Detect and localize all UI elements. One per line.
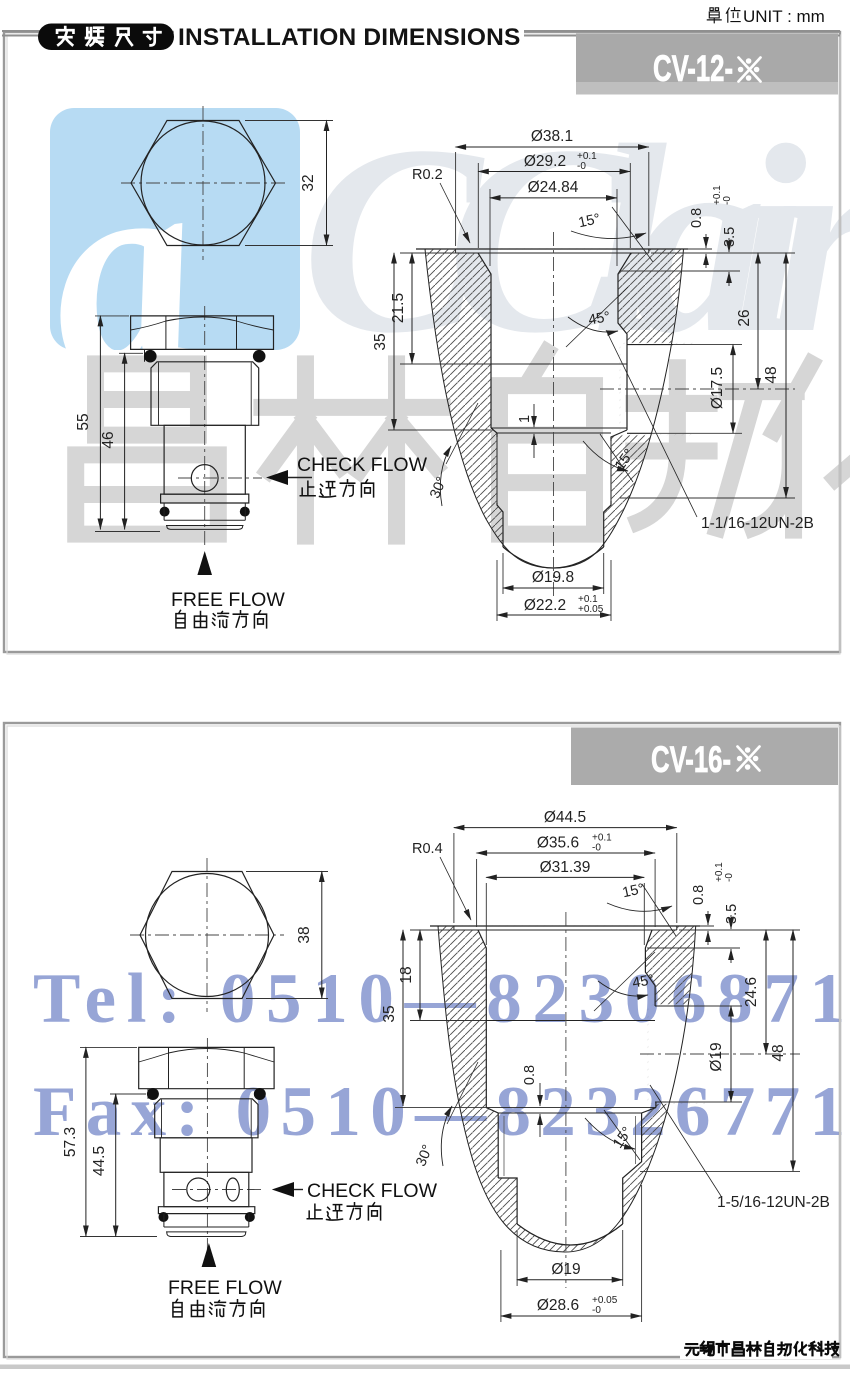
svg-text:32: 32	[300, 174, 317, 191]
svg-text:44.5: 44.5	[91, 1146, 108, 1176]
svg-text:0.8: 0.8	[691, 885, 707, 905]
svg-text:57.3: 57.3	[62, 1127, 79, 1157]
svg-text:Ø22.2: Ø22.2	[524, 597, 566, 614]
svg-text:-0: -0	[722, 196, 733, 205]
svg-text:FREE FLOW: FREE FLOW	[168, 1277, 282, 1299]
svg-text:CHECK FLOW: CHECK FLOW	[297, 454, 428, 476]
svg-text:Ø35.6: Ø35.6	[537, 835, 579, 852]
svg-text:Ø19: Ø19	[551, 1261, 580, 1278]
svg-text:0.8: 0.8	[689, 208, 705, 228]
svg-text:CHECK FLOW: CHECK FLOW	[307, 1180, 438, 1202]
svg-text:Ø29.2: Ø29.2	[524, 153, 566, 170]
svg-text:21.5: 21.5	[390, 293, 407, 323]
svg-text:FREE FLOW: FREE FLOW	[171, 589, 285, 611]
svg-text:R0.4: R0.4	[412, 841, 443, 857]
svg-text:48: 48	[770, 1044, 787, 1061]
svg-text:Ø44.5: Ø44.5	[544, 809, 586, 826]
svg-text:3.5: 3.5	[722, 227, 738, 247]
svg-text:Ø19.8: Ø19.8	[532, 569, 574, 586]
svg-text:1-1/16-12UN-2B: 1-1/16-12UN-2B	[701, 515, 814, 532]
svg-text:1-5/16-12UN-2B: 1-5/16-12UN-2B	[717, 1194, 830, 1211]
svg-text:0.8: 0.8	[522, 1065, 538, 1085]
svg-text:-0: -0	[577, 161, 586, 172]
svg-text:46: 46	[100, 431, 117, 448]
svg-text:INSTALLATION DIMENSIONS: INSTALLATION DIMENSIONS	[178, 24, 521, 51]
svg-text:3.5: 3.5	[724, 904, 740, 924]
svg-text:CV-12-: CV-12-	[653, 48, 733, 89]
svg-text:35: 35	[381, 1005, 398, 1022]
svg-text:-0: -0	[724, 873, 735, 882]
svg-text:-0: -0	[592, 1305, 601, 1316]
svg-text:-0: -0	[592, 843, 601, 854]
svg-text:+0.05: +0.05	[578, 604, 604, 615]
svg-text:Ø28.6: Ø28.6	[537, 1297, 579, 1314]
svg-text:26: 26	[736, 309, 753, 326]
svg-text:35: 35	[372, 333, 389, 350]
svg-text:Ø38.1: Ø38.1	[531, 128, 573, 145]
svg-text:Ø24.84: Ø24.84	[528, 179, 579, 196]
svg-text:48: 48	[763, 366, 780, 383]
svg-text:CV-16-: CV-16-	[651, 739, 731, 780]
svg-text:UNIT : mm: UNIT : mm	[743, 7, 825, 26]
svg-text:24.6: 24.6	[743, 977, 760, 1007]
svg-text:18: 18	[398, 966, 415, 983]
svg-text:1: 1	[517, 415, 533, 423]
svg-text:55: 55	[75, 413, 92, 430]
svg-text:Ø31.39: Ø31.39	[540, 859, 591, 876]
svg-text:Ø19: Ø19	[708, 1042, 725, 1071]
svg-text:38: 38	[296, 926, 313, 943]
svg-text:R0.2: R0.2	[412, 167, 443, 183]
svg-text:Ø17.5: Ø17.5	[709, 367, 726, 409]
